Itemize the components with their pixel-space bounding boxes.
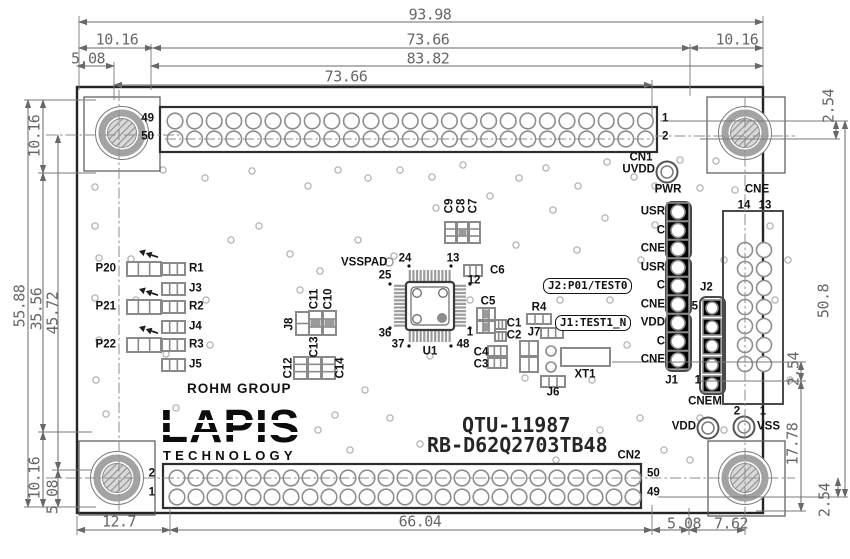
via [785, 257, 791, 263]
cn2-pin [340, 489, 356, 505]
u1-pin [423, 330, 425, 342]
via [732, 187, 738, 193]
via [607, 297, 613, 303]
via [767, 223, 773, 229]
via [543, 165, 549, 171]
via [687, 457, 693, 463]
via [103, 411, 109, 417]
component-pad [495, 320, 506, 329]
pad-fill [325, 320, 335, 327]
via [347, 447, 353, 453]
u1-pin [454, 325, 466, 327]
via [661, 447, 667, 453]
via [772, 297, 778, 303]
via [202, 175, 208, 181]
component-pad [527, 314, 551, 324]
via [332, 412, 338, 418]
component-pad [322, 357, 335, 379]
led-arrow-icon [138, 248, 159, 261]
cnem-pin [706, 378, 718, 390]
cn2-pin [568, 489, 584, 505]
u1-pin [394, 310, 406, 312]
u1-pin [430, 330, 432, 342]
u1-pin [420, 330, 422, 342]
via [427, 353, 433, 359]
pad-fill [484, 323, 489, 332]
u1-index-dot [407, 344, 410, 347]
u1-pin [454, 296, 466, 298]
cn2-pin [226, 489, 242, 505]
cne-pin [757, 262, 772, 277]
u1-pin [454, 314, 466, 316]
via [677, 157, 683, 163]
u1-pin [454, 310, 466, 312]
xt1-body [561, 348, 610, 366]
u1-chip-body [406, 282, 454, 330]
cnem-pin [706, 302, 718, 314]
via [575, 183, 581, 189]
cn2-pin [321, 489, 337, 505]
cn2-pin [302, 489, 318, 505]
cn1-pin [383, 113, 399, 129]
via [249, 168, 255, 174]
cn2-pin [435, 489, 451, 505]
cn2-pin [397, 489, 413, 505]
cn1-pin [618, 113, 634, 129]
cn1-pin [520, 113, 536, 129]
u1-pin [454, 317, 466, 319]
u1-pin [445, 270, 447, 282]
cn2-pin [188, 489, 204, 505]
xt1-pad [546, 346, 556, 356]
u1-pin [445, 330, 447, 342]
u1-pin [394, 317, 406, 319]
component-pad [541, 328, 563, 338]
u1-pin [427, 270, 429, 282]
component-pad [488, 358, 507, 368]
u1-pin [394, 296, 406, 298]
u1-pin [449, 330, 451, 342]
component-pad [162, 321, 185, 333]
cn1-pin [246, 113, 262, 129]
via [335, 167, 341, 173]
component-pad [308, 357, 321, 379]
component-pad [469, 222, 480, 243]
pad-fill [459, 230, 467, 236]
cn2-pin [606, 489, 622, 505]
u1-pin [454, 306, 466, 308]
via [247, 417, 253, 423]
via [721, 427, 727, 433]
cn1-pin [559, 113, 575, 129]
via [522, 375, 528, 381]
via [297, 287, 303, 293]
cn1-pin [304, 113, 320, 129]
via [160, 167, 166, 173]
via [417, 441, 423, 447]
cnem-pin [706, 359, 718, 371]
via [574, 247, 580, 253]
cn1-pin [265, 113, 281, 129]
component-pad [162, 359, 185, 371]
component-pad [162, 283, 185, 295]
cn1-pin [422, 113, 438, 129]
u1-pin [454, 321, 466, 323]
u1-pin [412, 270, 414, 282]
u1-pin [394, 325, 406, 327]
via [173, 405, 179, 411]
via [602, 215, 608, 221]
via [697, 185, 703, 191]
u1-pin [416, 270, 418, 282]
via [397, 167, 403, 173]
header-pin [671, 279, 685, 293]
via [487, 193, 493, 199]
via [387, 415, 393, 421]
header-pin [671, 224, 685, 238]
component-pad [127, 300, 161, 314]
cn2-pin [378, 489, 394, 505]
cne-pin [757, 300, 772, 315]
drawing-svg [0, 0, 850, 559]
cn1-pin [363, 113, 379, 129]
cn2-pin [416, 489, 432, 505]
u1-pin [441, 270, 443, 282]
power-pad-inner [661, 166, 673, 178]
header-pin [671, 261, 685, 275]
via [550, 207, 556, 213]
component-pad [495, 332, 506, 341]
u1-pin [412, 330, 414, 342]
via [652, 222, 658, 228]
header-pin [671, 298, 685, 312]
u1-pin [454, 299, 466, 301]
via [93, 377, 99, 383]
header-pin [671, 205, 685, 219]
component-pad [127, 338, 161, 352]
via [391, 253, 397, 259]
via [92, 223, 98, 229]
u1-pin [454, 292, 466, 294]
via [96, 255, 102, 261]
u1-index-dot [468, 326, 471, 329]
cn1-pin [226, 113, 242, 129]
via [597, 427, 603, 433]
power-pad-inner [738, 421, 750, 433]
via [624, 342, 630, 348]
cne-pin [757, 281, 772, 296]
cn2-pin [530, 489, 546, 505]
led-arrow-icon [138, 324, 159, 337]
pcb-dimensional-drawing: 93.9810.1673.6610.165.0883.8273.6610.165… [0, 0, 850, 559]
via [604, 159, 610, 165]
cn2-pin [359, 489, 375, 505]
u1-index-dot [407, 264, 410, 267]
u1-pin [409, 270, 411, 282]
pad-fill [484, 310, 489, 319]
via [315, 427, 321, 433]
led-arrow-icon [138, 286, 159, 299]
cn1-pin [598, 113, 614, 129]
component-pad [294, 357, 307, 379]
cne-pin [757, 319, 772, 334]
cne-pin [757, 357, 772, 372]
u1-pin [449, 270, 451, 282]
cn2-pin [264, 489, 280, 505]
u1-pin [394, 285, 406, 287]
cn2-pin [473, 489, 489, 505]
cn1-pin [167, 113, 183, 129]
cn2-pin [207, 489, 223, 505]
u1-index-dot [388, 326, 391, 329]
via [355, 237, 361, 243]
cn1-pin [324, 113, 340, 129]
u1-pin [430, 270, 432, 282]
cn2-pin [169, 489, 185, 505]
component-pad [162, 301, 185, 313]
u1-pin [416, 330, 418, 342]
via [433, 205, 439, 211]
u1-pin [394, 288, 406, 290]
via [228, 237, 234, 243]
u1-pin1-mark [437, 313, 447, 323]
via [638, 257, 644, 263]
component-pad [488, 346, 507, 356]
via [362, 387, 368, 393]
via [207, 342, 213, 348]
u1-pin [454, 288, 466, 290]
u1-index-dot [449, 344, 452, 347]
via [637, 415, 643, 421]
u1-pin [427, 330, 429, 342]
cn1-pin [344, 113, 360, 129]
cn2-pin [245, 489, 261, 505]
cn2-pin [549, 489, 565, 505]
xt1-pad [546, 362, 556, 372]
cne-pin [757, 243, 772, 258]
u1-pin [454, 303, 466, 305]
u1-pin [394, 299, 406, 301]
via [287, 251, 293, 257]
cn1-pin [187, 113, 203, 129]
u1-index-dot [468, 282, 471, 285]
u1-pin [409, 330, 411, 342]
vsspad-via [385, 258, 393, 266]
u1-pin [394, 321, 406, 323]
component-pad [445, 222, 456, 243]
via [652, 183, 658, 189]
cn1-pin [638, 113, 654, 129]
via [557, 297, 563, 303]
via [516, 175, 522, 181]
cn1-pin [579, 113, 595, 129]
cn2-pin [587, 489, 603, 505]
pad-fill [311, 320, 321, 327]
cn1-pin [461, 113, 477, 129]
header-pin [671, 353, 685, 367]
u1-pin [438, 330, 440, 342]
cn1-pin [500, 113, 516, 129]
component-pad [541, 376, 565, 387]
via [96, 337, 102, 343]
cn2-pin [625, 489, 641, 505]
u1-pin [394, 306, 406, 308]
u1-index-dot [449, 264, 452, 267]
cn2-pin [283, 489, 299, 505]
via [317, 268, 323, 274]
via [256, 223, 262, 229]
via [713, 158, 719, 164]
u1-pin [394, 314, 406, 316]
cn1-pin [402, 113, 418, 129]
u1-pin [423, 270, 425, 282]
cn2-pin [492, 489, 508, 505]
u1-pin [394, 292, 406, 294]
header-pin [671, 316, 685, 330]
cn1-pin [285, 113, 301, 129]
cn1-pin [442, 113, 458, 129]
u1-pin [434, 330, 436, 342]
u1-pin [441, 330, 443, 342]
via [460, 162, 466, 168]
header-pin [671, 335, 685, 349]
u1-pin [434, 270, 436, 282]
component-pad [464, 265, 482, 276]
u1-pin [454, 285, 466, 287]
u1-pin [438, 270, 440, 282]
u1-pin [394, 303, 406, 305]
via [513, 242, 519, 248]
cn1-pin [206, 113, 222, 129]
component-pad [162, 339, 185, 351]
power-pad-inner [702, 422, 714, 434]
component-pad [162, 263, 185, 275]
via [589, 377, 595, 383]
u1-index-dot [388, 282, 391, 285]
via [305, 183, 311, 189]
cn1-pin [481, 113, 497, 129]
via [92, 295, 98, 301]
via [467, 297, 473, 303]
mounting-hole [108, 119, 137, 148]
u1-pin [420, 270, 422, 282]
via [92, 184, 98, 190]
cnem-pin [706, 321, 718, 333]
cn2-pin [454, 489, 470, 505]
via [787, 377, 793, 383]
via [365, 175, 371, 181]
via [553, 457, 559, 463]
via [631, 174, 637, 180]
via [429, 174, 435, 180]
header-pin [671, 242, 685, 256]
component-pad [127, 262, 161, 276]
cnem-pin [706, 340, 718, 352]
cn1-pin [540, 113, 556, 129]
cn2-pin [511, 489, 527, 505]
cne-pin [757, 338, 772, 353]
via [203, 297, 209, 303]
